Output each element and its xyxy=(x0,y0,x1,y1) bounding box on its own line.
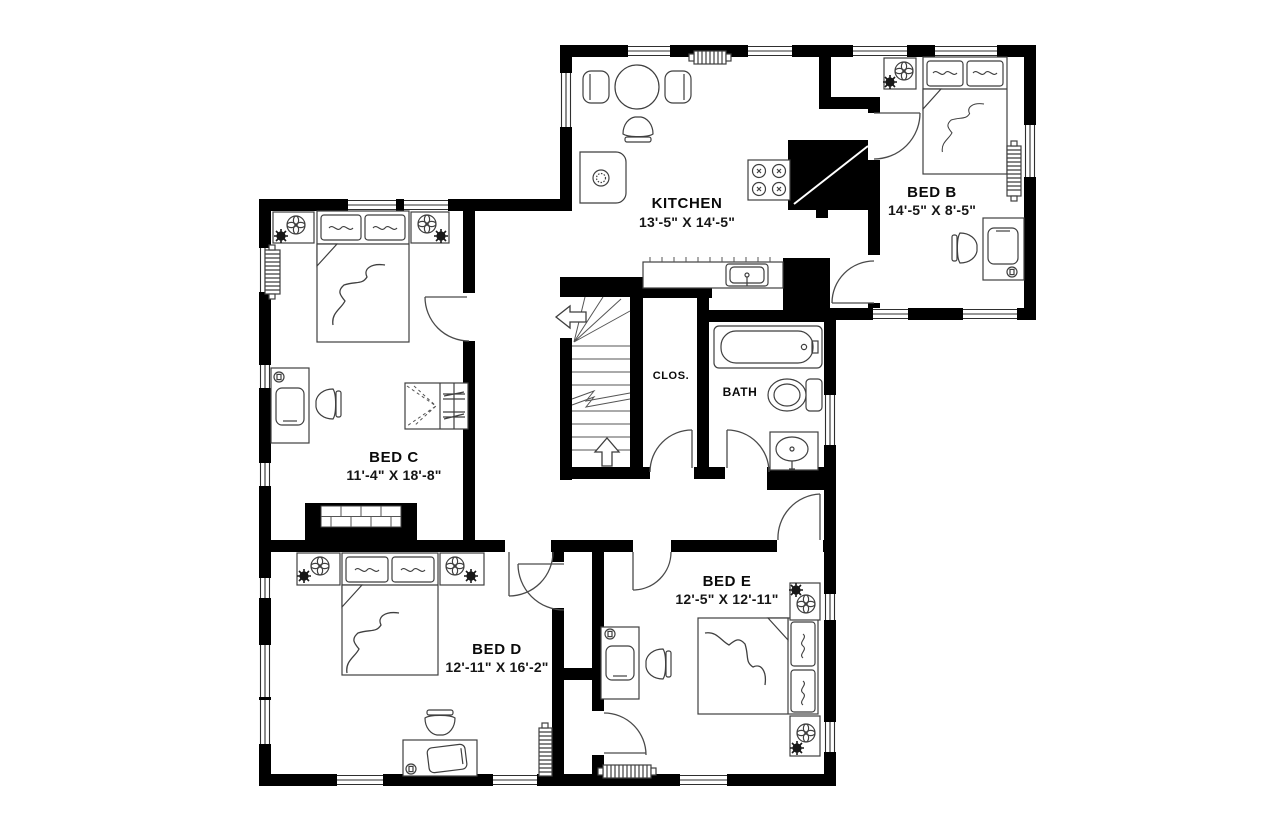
window xyxy=(259,700,271,744)
break-line xyxy=(572,391,630,407)
room-dims-bed-b: 14'-5" X 8'-5" xyxy=(888,202,976,218)
radiator-icon xyxy=(1007,141,1021,201)
window xyxy=(493,774,537,786)
room-label-closet: CLOS. xyxy=(653,370,690,382)
bed-e-hall-door xyxy=(778,494,820,540)
bed-icon xyxy=(317,211,409,342)
refrigerator-icon xyxy=(580,152,626,203)
desk-icon xyxy=(952,218,1024,280)
bed-icon xyxy=(698,618,818,714)
window xyxy=(824,395,836,445)
radiator-icon xyxy=(265,245,280,299)
nightstand-icon xyxy=(790,716,820,756)
desk-chair-icon xyxy=(646,649,671,679)
dining-chair-icon xyxy=(583,71,609,103)
window xyxy=(1024,125,1036,177)
radiator-icon xyxy=(598,765,656,778)
dining-chair-icon xyxy=(623,117,653,142)
bed-e-entry-door xyxy=(633,552,671,590)
desk-icon xyxy=(271,368,341,443)
stairs-up-arrow xyxy=(595,438,619,466)
room-label-kitchen: KITCHEN xyxy=(652,195,723,212)
bed-icon xyxy=(342,553,438,675)
window xyxy=(259,463,271,486)
nightstand-icon xyxy=(273,212,314,243)
room-dims-bed-d: 12'-11" X 16'-2" xyxy=(445,659,548,675)
floor-plan-drawing: KITCHEN 13'-5" X 14'-5" BED B 14'-5" X 8… xyxy=(0,0,1280,828)
window xyxy=(628,45,670,57)
bed-c-furniture xyxy=(265,211,468,545)
bathtub-icon xyxy=(714,326,822,368)
room-label-bath: BATH xyxy=(723,385,758,399)
dining-chair-icon xyxy=(665,71,691,103)
outlet-icon xyxy=(1007,267,1017,277)
nightstand-icon xyxy=(440,553,484,585)
closet-bifold-icon xyxy=(405,383,468,429)
room-label-bed-d: BED D xyxy=(472,641,522,658)
window xyxy=(259,365,271,388)
window xyxy=(560,73,572,127)
window xyxy=(873,308,908,320)
window xyxy=(259,645,271,697)
room-label-bed-b: BED B xyxy=(907,184,957,201)
window xyxy=(853,45,907,57)
desk-icon xyxy=(601,627,671,699)
room-dims-bed-c: 11'-4" X 18'-8" xyxy=(346,467,441,483)
toilet-icon xyxy=(768,379,822,411)
bed-b-furniture xyxy=(883,57,1024,280)
desk-icon xyxy=(403,710,477,776)
nightstand-icon xyxy=(297,553,340,585)
room-dims-kitchen: 13'-5" X 14'-5" xyxy=(639,214,735,230)
window xyxy=(824,722,836,752)
window xyxy=(824,594,836,620)
bed-e-furniture xyxy=(598,583,820,778)
outlet-icon xyxy=(406,764,416,774)
bath-sink-icon xyxy=(770,432,818,470)
bath-door xyxy=(727,430,769,472)
outlet-icon xyxy=(605,629,615,639)
duct-mass xyxy=(783,258,830,318)
window xyxy=(748,45,792,57)
kitchen-sink-icon xyxy=(726,264,768,286)
kitchen-furniture xyxy=(580,51,790,288)
desk-chair-icon xyxy=(952,233,977,263)
outlet-icon xyxy=(274,372,284,382)
window xyxy=(963,308,1017,320)
bed-b-lower-door xyxy=(832,261,874,303)
nightstand-icon xyxy=(883,58,916,89)
window xyxy=(680,774,727,786)
desk-chair-icon xyxy=(316,389,341,419)
window xyxy=(337,774,383,786)
window xyxy=(348,199,396,211)
window xyxy=(935,45,997,57)
floor-plan-page: KITCHEN 13'-5" X 14'-5" BED B 14'-5" X 8… xyxy=(0,0,1280,828)
bed-b-upper-door xyxy=(874,113,920,159)
closet-door xyxy=(650,430,692,472)
window xyxy=(259,578,271,598)
fireplace-icon xyxy=(305,503,417,545)
nightstand-icon xyxy=(789,583,820,620)
room-label-bed-e: BED E xyxy=(703,573,752,590)
vent-grille-icon xyxy=(689,51,731,64)
bed-icon xyxy=(923,57,1007,174)
kitchen-counter xyxy=(643,257,783,288)
bed-e-closet-door xyxy=(604,713,646,755)
nightstand-icon xyxy=(411,212,449,243)
radiator-icon xyxy=(539,723,552,776)
bed-d-entry-door xyxy=(509,552,553,596)
room-label-bed-c: BED C xyxy=(369,449,419,466)
window xyxy=(404,199,448,211)
stove-icon xyxy=(748,160,790,200)
dining-table-icon xyxy=(615,65,659,109)
bed-c-door xyxy=(425,297,469,341)
desk-chair-icon xyxy=(425,710,455,735)
room-dims-bed-e: 12'-5" X 12'-11" xyxy=(675,591,778,607)
